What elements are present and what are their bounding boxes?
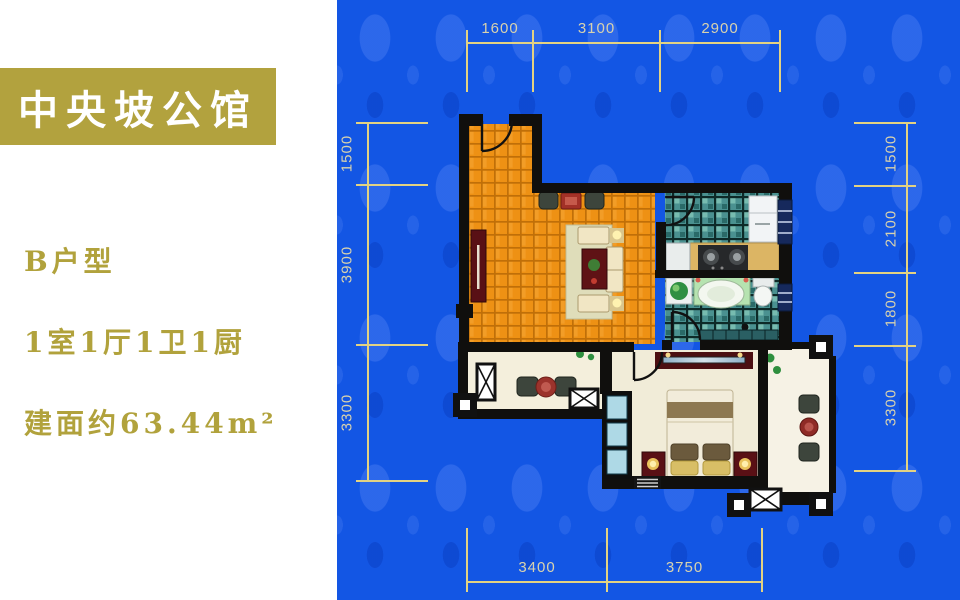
room-floors: [466, 124, 830, 494]
table-plant: [588, 259, 600, 271]
page: 中央坡公馆 B户型 1室1厅1卫1厨 建面约63.44m²: [0, 0, 960, 600]
dim-right-1: 1500: [883, 119, 900, 189]
sofa-seat: [578, 227, 609, 244]
dim-bottom-2: 3750: [607, 559, 762, 576]
dim-left-3: 3300: [339, 378, 356, 448]
pillow: [671, 444, 698, 460]
bathroom-window: [778, 284, 792, 311]
floor-plan: [0, 0, 960, 600]
fridge: [749, 196, 777, 242]
balcony-chair: [799, 443, 819, 461]
plant: [773, 366, 781, 374]
dim-right-3: 1800: [883, 274, 900, 344]
dim-top-2: 3100: [533, 20, 660, 37]
plant: [588, 354, 594, 360]
dim-left-1: 1500: [339, 119, 356, 189]
balcony-chair: [799, 395, 819, 413]
dining-chair: [539, 192, 558, 209]
dim-left-2: 3900: [339, 230, 356, 300]
pillow: [703, 461, 730, 475]
hatched-window: [750, 489, 781, 510]
kitchen-sink: [666, 243, 690, 272]
dim-top-1: 1600: [467, 20, 533, 37]
hatched-window: [570, 389, 598, 408]
dining-chair: [585, 192, 604, 209]
ac-unit: [634, 476, 661, 489]
pillow: [703, 444, 730, 460]
bath-plant: [670, 282, 688, 300]
sofa-seat: [578, 295, 609, 312]
entry-vestibule-floor: [469, 124, 532, 193]
dim-right-2: 2100: [883, 194, 900, 264]
pillow: [671, 461, 698, 475]
dim-top-3: 2900: [660, 20, 780, 37]
dim-bottom-1: 3400: [467, 559, 607, 576]
sitting-chair: [517, 377, 538, 396]
dim-right-4: 3300: [883, 373, 900, 443]
balcony-floor: [762, 348, 830, 494]
hatched-window: [477, 364, 495, 400]
